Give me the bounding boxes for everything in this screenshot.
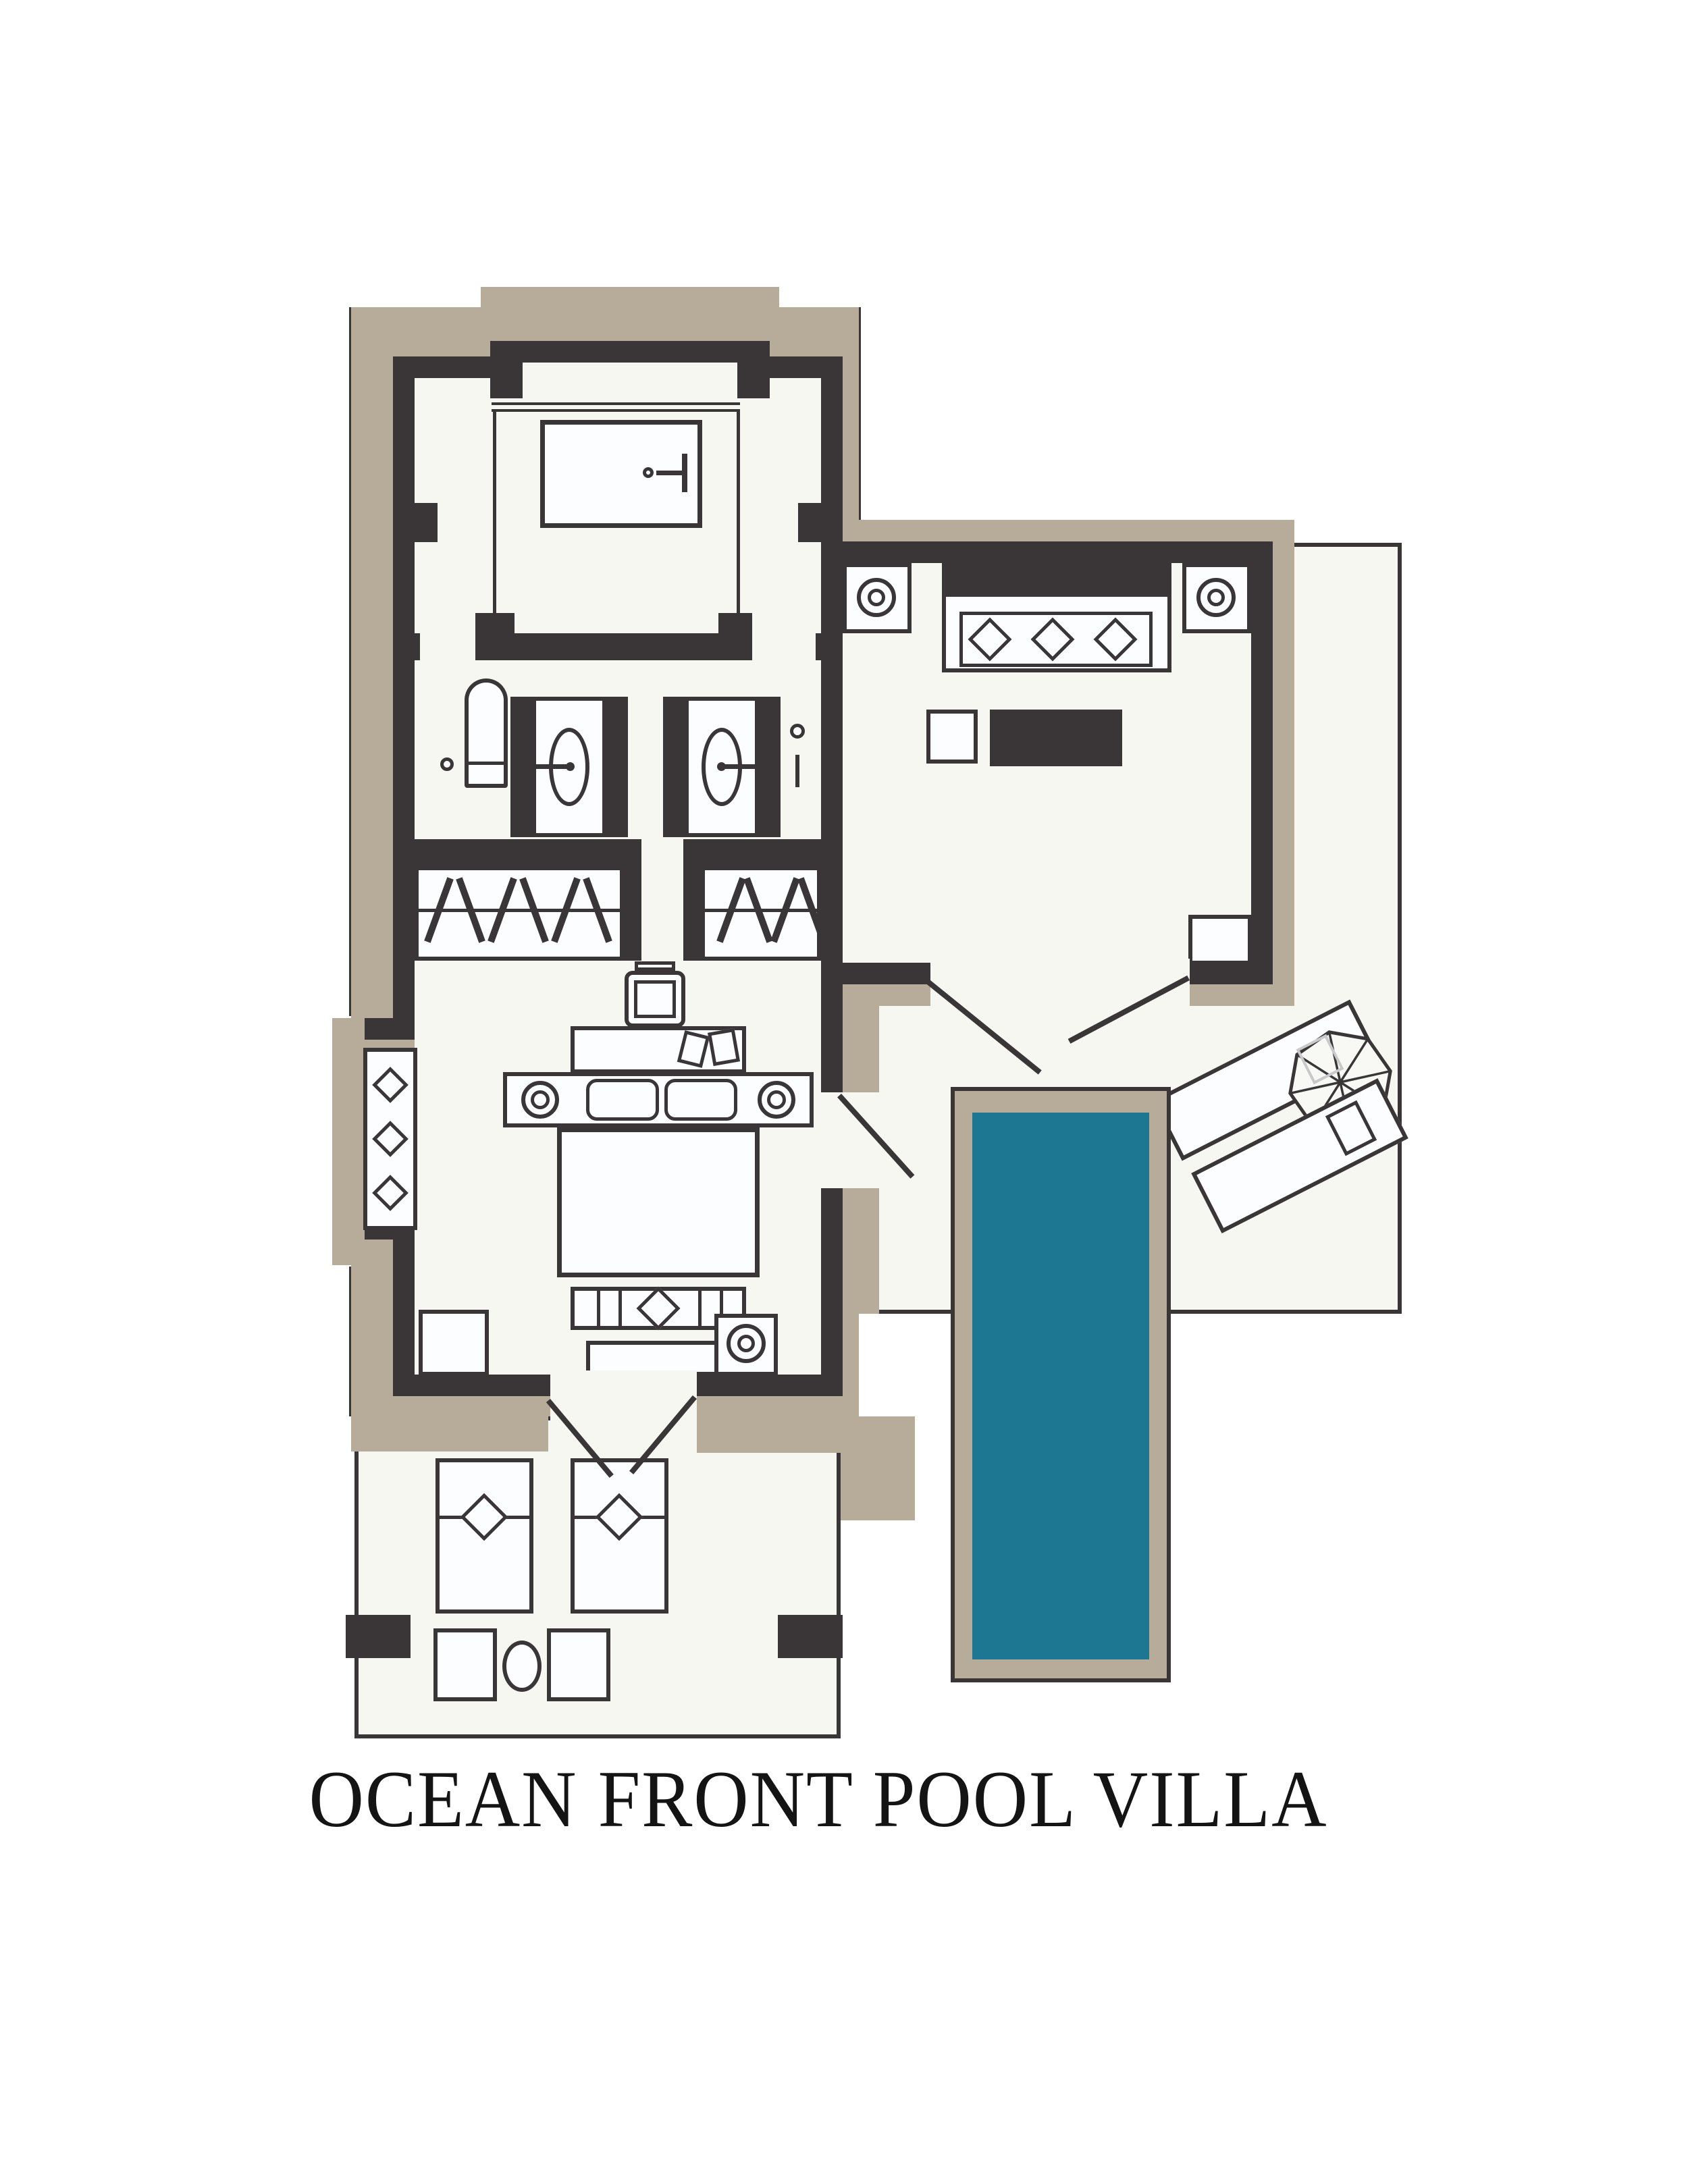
villa-bottom-band xyxy=(351,1416,548,1451)
wardrobe-rail xyxy=(419,909,620,912)
wall-stub xyxy=(490,363,523,398)
floor-plan: OCEAN FRONT POOL VILLA xyxy=(0,0,1688,2184)
table-lamp-icon xyxy=(868,589,885,606)
villa-bottom-band xyxy=(697,1416,915,1453)
wall-stub xyxy=(737,363,770,398)
villa-corner-block xyxy=(841,1453,915,1520)
side-table-icon xyxy=(1188,915,1252,965)
vanity-partition xyxy=(759,697,781,837)
desk-chair-seat xyxy=(634,980,676,1018)
sink-faucet-dot xyxy=(566,762,575,771)
wall-hairline xyxy=(349,307,351,1016)
toilet-seat-line xyxy=(467,762,506,765)
vanity-partition xyxy=(510,697,532,837)
sink-faucet xyxy=(532,764,569,769)
wardrobe-end xyxy=(620,866,641,961)
villa-outer-wall-step xyxy=(481,287,779,307)
wardrobe-wall xyxy=(683,839,821,866)
villa-wall-step xyxy=(490,341,770,363)
vanity-partition xyxy=(663,697,685,837)
glass-partition-line xyxy=(492,402,740,405)
speaker-icon xyxy=(737,1335,755,1352)
bench-slat xyxy=(597,1287,600,1330)
deck-wall-stub xyxy=(778,1615,843,1658)
ottoman-icon xyxy=(547,1628,610,1701)
doorway xyxy=(930,959,1190,1009)
toilet-icon xyxy=(465,678,508,788)
glass-partition-line xyxy=(492,409,740,412)
doorway xyxy=(752,628,816,666)
wardrobe-end xyxy=(683,866,705,961)
round-table-icon xyxy=(502,1641,542,1692)
desk-chair-back xyxy=(635,961,675,971)
pillow-icon xyxy=(586,1079,659,1121)
vanity-partition xyxy=(606,697,628,837)
glass-partition-line xyxy=(493,409,496,633)
deck-wall-stub xyxy=(346,1615,411,1658)
bathtub-faucet xyxy=(656,471,682,475)
pool-water xyxy=(972,1113,1149,1659)
toilet-flush-icon xyxy=(440,757,454,771)
bench-slat xyxy=(618,1287,622,1330)
pillow-icon xyxy=(664,1079,737,1121)
sofa-backrest xyxy=(942,554,1171,593)
shower-control xyxy=(795,755,799,787)
coffee-table-icon xyxy=(990,710,1122,766)
wardrobe-wall xyxy=(415,839,641,866)
bedside-lamp-icon xyxy=(767,1090,786,1109)
bathtub-drain xyxy=(643,467,654,478)
bench-slat xyxy=(698,1287,702,1330)
sink-faucet-dot xyxy=(717,762,726,771)
bathtub-faucet xyxy=(682,454,687,492)
wall-pier xyxy=(798,503,843,542)
bay-window-jamb xyxy=(365,1018,415,1040)
corner-table-icon xyxy=(419,1310,489,1376)
plan-title: OCEAN FRONT POOL VILLA xyxy=(49,1753,1588,1846)
shower-head-icon xyxy=(790,724,805,739)
wardrobe-rail xyxy=(705,909,821,912)
wall-hairline xyxy=(349,1267,351,1416)
wall-hairline xyxy=(859,307,861,520)
magazine-icon xyxy=(708,1028,740,1066)
ottoman-icon xyxy=(433,1628,497,1701)
glass-wall-stub xyxy=(718,613,752,660)
villa-floor-step xyxy=(523,363,737,378)
bed-icon xyxy=(557,1127,760,1277)
table-lamp-icon xyxy=(1207,589,1225,606)
wall-pier xyxy=(393,503,438,542)
side-table-icon xyxy=(926,710,978,764)
bedside-lamp-icon xyxy=(531,1090,550,1109)
doorway xyxy=(420,628,476,666)
glass-partition-line xyxy=(737,409,740,633)
sink-faucet xyxy=(722,764,759,769)
bay-window-bump xyxy=(332,1018,351,1265)
